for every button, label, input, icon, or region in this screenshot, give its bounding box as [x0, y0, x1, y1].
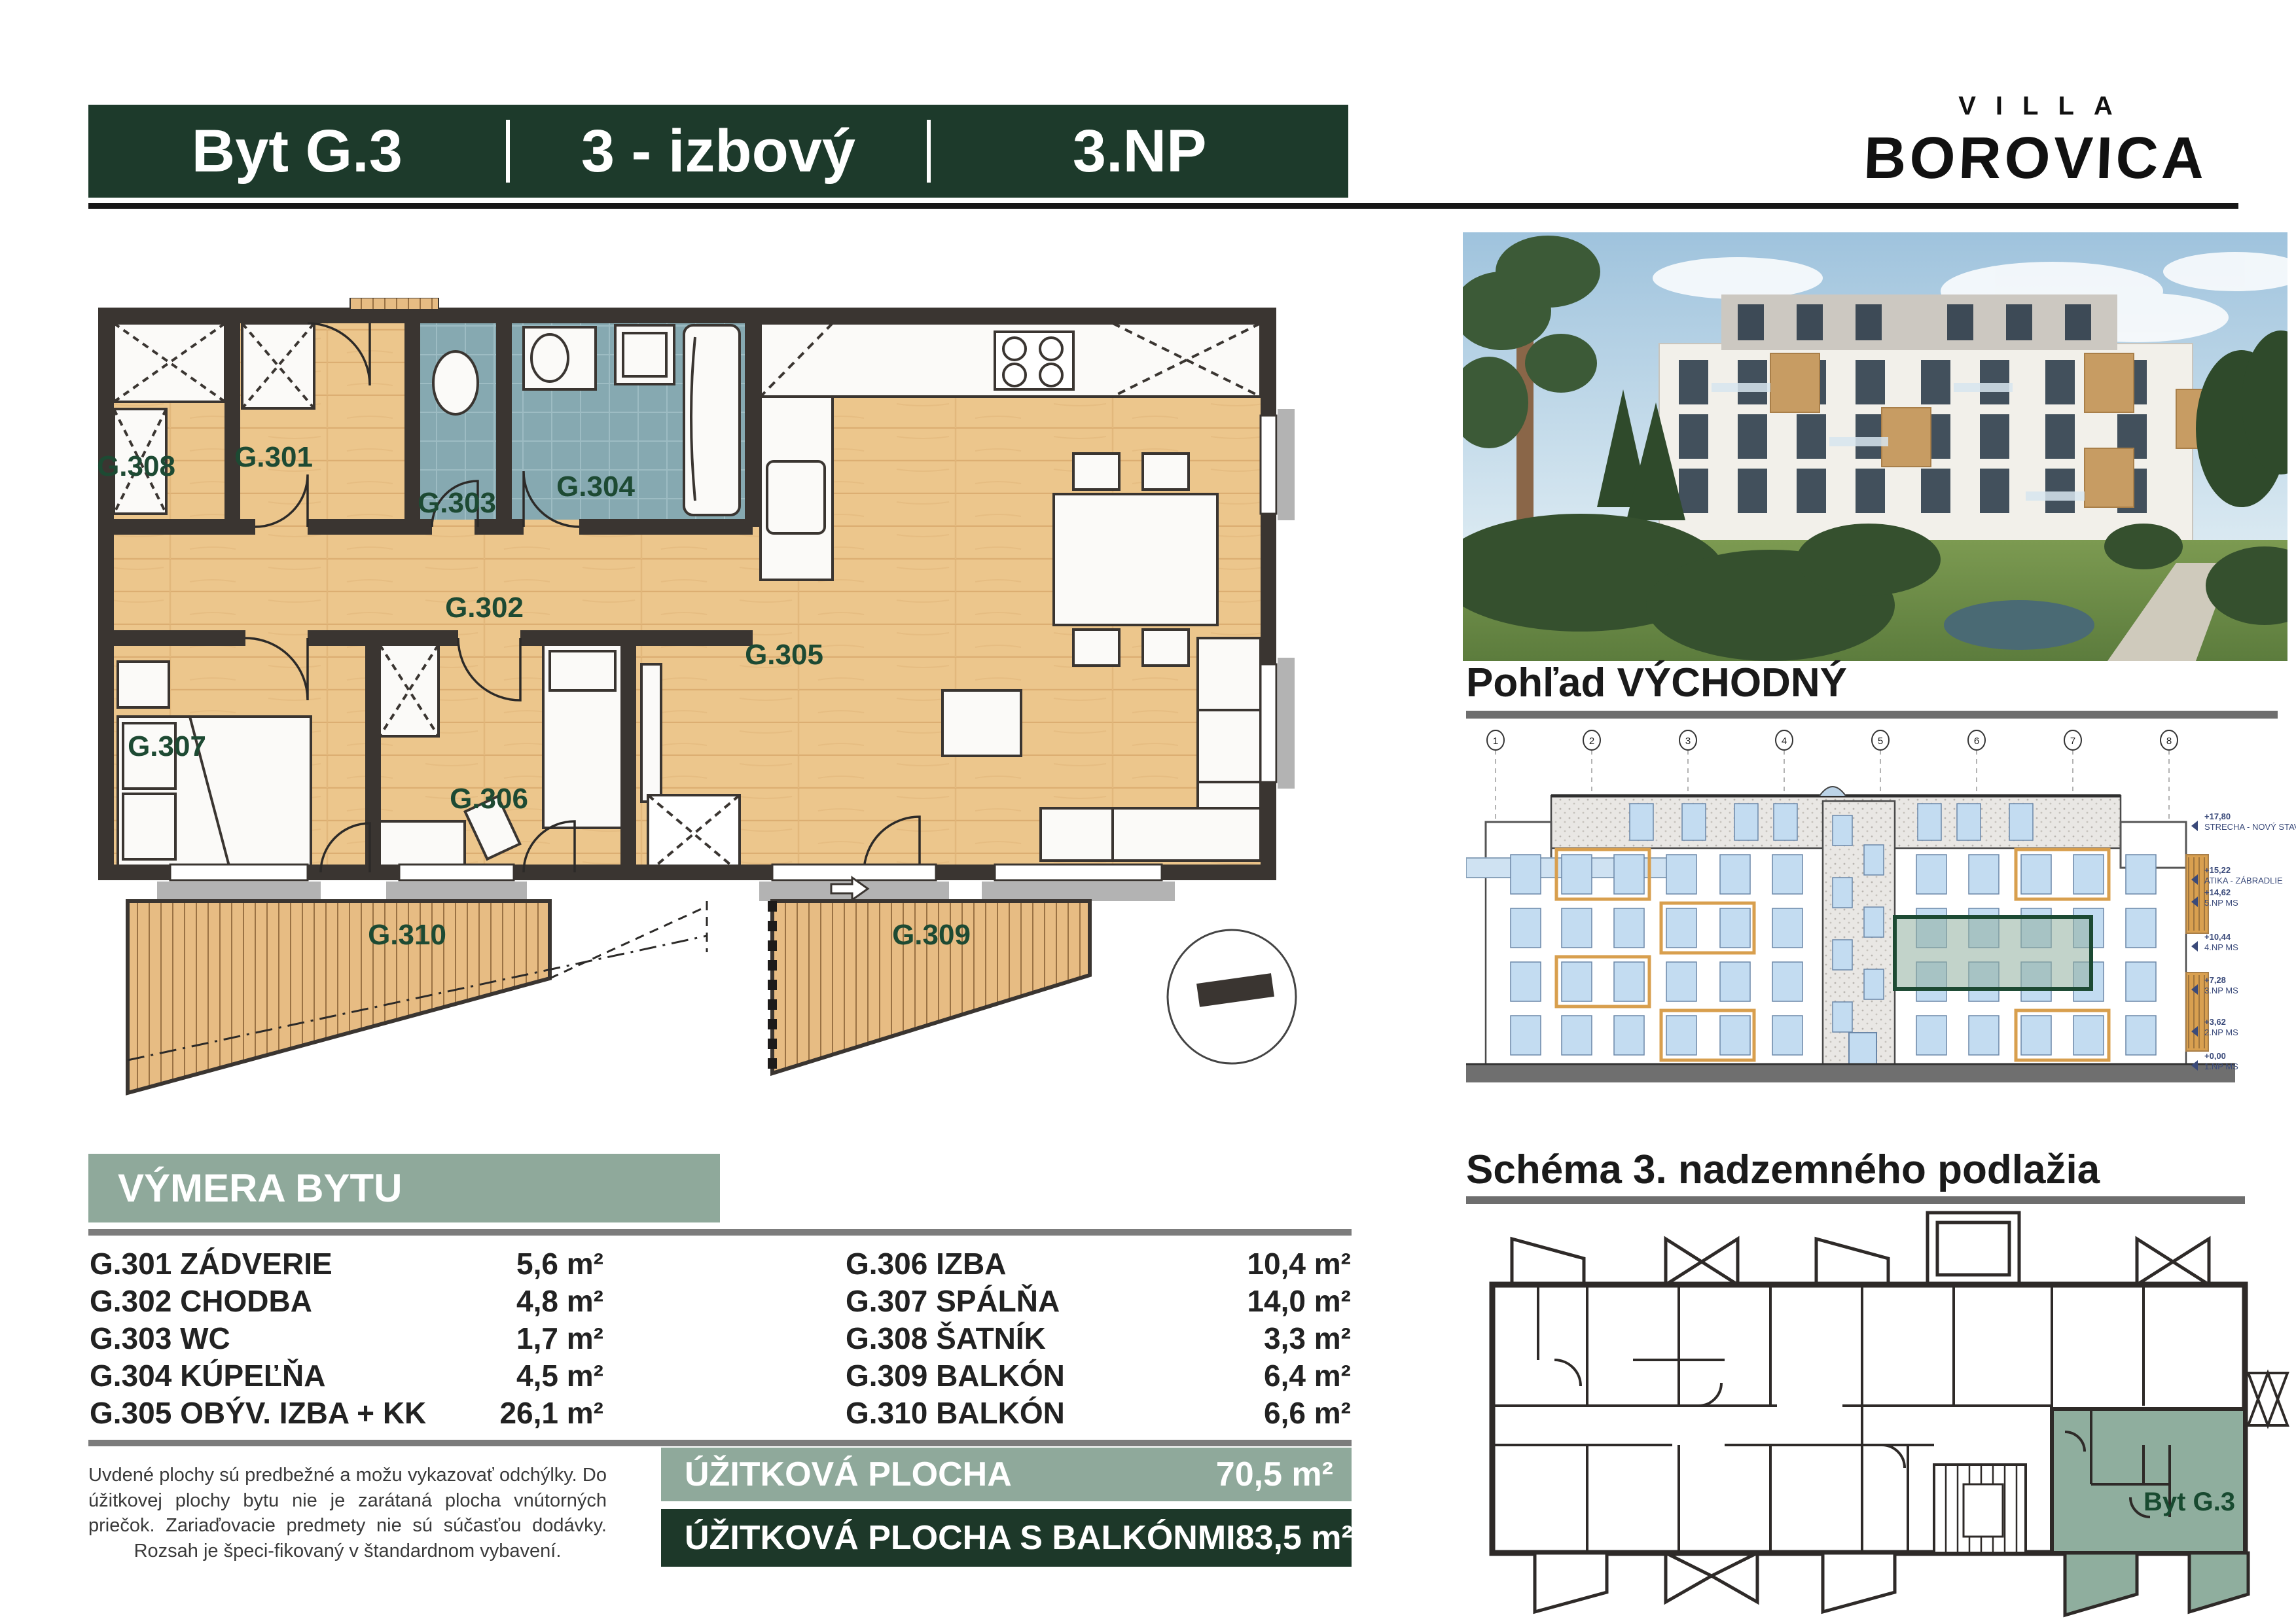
usable-area-with-balconies-bar: ÚŽITKOVÁ PLOCHA S BALKÓNMI 83,5 m² — [661, 1509, 1352, 1567]
table-row: G.305 OBÝV. IZBA + KK26,1 m² — [90, 1394, 603, 1431]
svg-text:+17,80: +17,80 — [2204, 811, 2231, 821]
elevation-unit-highlight — [1895, 917, 2091, 989]
brand-logo-borovica: BOROVICA — [1825, 125, 2246, 192]
room-label-g302: G.302 — [445, 592, 524, 624]
svg-text:2: 2 — [1589, 736, 1594, 747]
table-row: G.303 WC1,7 m² — [90, 1319, 603, 1357]
svg-text:7: 7 — [2070, 736, 2075, 747]
east-view-rule — [1466, 711, 2278, 719]
table-row: G.307 SPÁLŇA14,0 m² — [846, 1282, 1351, 1319]
svg-text:ATIKA - ZÁBRADLIE: ATIKA - ZÁBRADLIE — [2204, 876, 2283, 885]
schema-drawing: Byt G.3 — [1476, 1209, 2291, 1620]
building-photo — [1463, 232, 2287, 661]
table-row: G.310 BALKÓN6,6 m² — [846, 1394, 1351, 1431]
room-label-g305: G.305 — [745, 639, 823, 671]
elevation-levels: +17,80STRECHA - NOVÝ STAV +15,22ATIKA - … — [2191, 811, 2296, 1071]
east-view-title: Pohľad VÝCHODNÝ — [1466, 660, 1847, 706]
unit-id: Byt G.3 — [88, 117, 506, 186]
area-table-title-bar: VÝMERA BYTU — [88, 1154, 720, 1222]
room-label-g307: G.307 — [128, 730, 206, 762]
svg-text:+7,28: +7,28 — [2204, 975, 2226, 985]
svg-text:1: 1 — [1493, 736, 1498, 747]
svg-text:+15,22: +15,22 — [2204, 865, 2231, 875]
svg-text:5: 5 — [1878, 736, 1883, 747]
table-row: G.308 ŠATNÍK3,3 m² — [846, 1319, 1351, 1357]
svg-text:5.NP MS: 5.NP MS — [2204, 898, 2238, 908]
area-table-left-column: G.301 ZÁDVERIE5,6 m² G.302 CHODBA4,8 m² … — [90, 1245, 603, 1431]
room-label-g309: G.309 — [892, 919, 971, 951]
svg-text:+14,62: +14,62 — [2204, 887, 2231, 897]
schema-title: Schéma 3. nadzemného podlažia — [1466, 1147, 2100, 1193]
disclaimer-text: Uvdené plochy sú predbežné a možu vykazo… — [88, 1463, 607, 1563]
table-row: G.309 BALKÓN6,4 m² — [846, 1357, 1351, 1394]
room-label-g301: G.301 — [234, 441, 313, 473]
svg-text:1.NP MS: 1.NP MS — [2204, 1061, 2238, 1071]
north-indicator — [1168, 930, 1296, 1063]
table-row: G.306 IZBA10,4 m² — [846, 1245, 1351, 1282]
brand-logo-villa: VILLA — [1826, 92, 2245, 121]
svg-text:+0,00: +0,00 — [2204, 1051, 2226, 1061]
table-row: G.301 ZÁDVERIE5,6 m² — [90, 1245, 603, 1282]
room-label-g306: G.306 — [450, 783, 528, 815]
apartment-header-bar: Byt G.3 3 - izbový 3.NP — [88, 105, 1348, 198]
svg-text:4.NP MS: 4.NP MS — [2204, 942, 2238, 952]
room-label-g304: G.304 — [556, 471, 635, 503]
table-rule-top — [88, 1229, 1352, 1236]
area-table-title: VÝMERA BYTU — [118, 1166, 402, 1211]
table-row: G.304 KÚPEĽŇA4,5 m² — [90, 1357, 603, 1394]
unit-floor: 3.NP — [931, 117, 1348, 186]
room-label-g308: G.308 — [97, 450, 175, 482]
schema-unit-highlight — [2052, 1409, 2245, 1553]
table-rule-bottom — [88, 1440, 1352, 1446]
usable-area-balconies-label: ÚŽITKOVÁ PLOCHA S BALKÓNMI — [685, 1518, 1236, 1558]
svg-text:4: 4 — [1782, 736, 1787, 747]
header-rule — [88, 203, 2238, 209]
schema-rule — [1466, 1196, 2245, 1204]
svg-text:8: 8 — [2166, 736, 2172, 747]
elevation-building — [1466, 787, 2235, 1082]
usable-area-balconies-value: 83,5 m² — [1236, 1518, 1353, 1558]
room-label-g303: G.303 — [418, 487, 496, 519]
table-row: G.302 CHODBA4,8 m² — [90, 1282, 603, 1319]
svg-text:+10,44: +10,44 — [2204, 932, 2231, 942]
schema-unit-label: Byt G.3 — [2144, 1488, 2235, 1516]
svg-text:2.NP MS: 2.NP MS — [2204, 1027, 2238, 1037]
room-label-g310: G.310 — [368, 919, 446, 951]
svg-text:STRECHA - NOVÝ STAV: STRECHA - NOVÝ STAV — [2204, 822, 2296, 832]
elevation-drawing: 12 34 56 78 — [1466, 724, 2296, 1103]
area-table-right-column: G.306 IZBA10,4 m² G.307 SPÁLŇA14,0 m² G.… — [846, 1245, 1351, 1431]
svg-text:3: 3 — [1685, 736, 1691, 747]
usable-area-value: 70,5 m² — [1216, 1455, 1333, 1494]
svg-text:6: 6 — [1974, 736, 1979, 747]
floorplan-drawing: G.301 G.302 G.303 G.304 G.305 G.306 G.30… — [92, 298, 1322, 1109]
brand-logo: VILLA BOROVICA — [1826, 92, 2245, 192]
unit-type: 3 - izbový — [510, 117, 927, 186]
svg-text:3.NP MS: 3.NP MS — [2204, 986, 2238, 995]
svg-text:+3,62: +3,62 — [2204, 1017, 2226, 1027]
usable-area-label: ÚŽITKOVÁ PLOCHA — [685, 1455, 1012, 1494]
usable-area-bar: ÚŽITKOVÁ PLOCHA 70,5 m² — [661, 1448, 1352, 1501]
